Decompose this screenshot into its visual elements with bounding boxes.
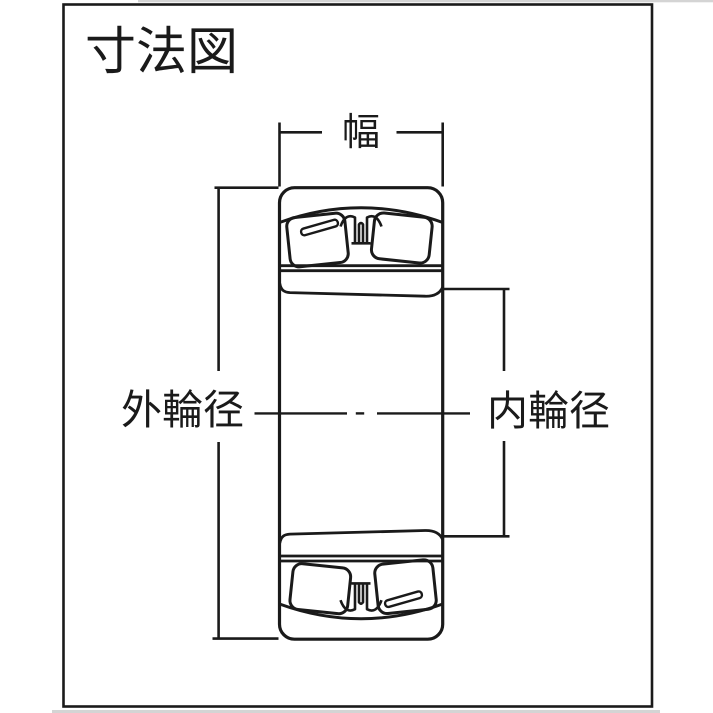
photo-edge-artifact-top (138, 0, 713, 2)
roller-bottom-right-highlight (384, 591, 422, 608)
photo-edge-artifacts (52, 0, 713, 713)
bearing-cross-section-drawing (0, 0, 713, 713)
diagram-title: 寸法図 (85, 27, 238, 78)
roller-top-left (286, 212, 349, 267)
outer-diameter-dimension-label: 外輪径 (121, 390, 244, 431)
roller-top-left-highlight (300, 219, 338, 236)
width-dimension-label: 幅 (342, 113, 380, 151)
bore-edge-top (280, 284, 443, 297)
roller-bottom-right (374, 559, 437, 614)
bore-edge-bottom (280, 530, 443, 543)
dimension-diagram: 寸法図 幅 外輪径 内輪径 (0, 0, 713, 713)
roller-top-right (371, 212, 433, 264)
inner-diameter-dimension-label: 内輪径 (487, 391, 610, 432)
roller-bottom-left (289, 563, 351, 615)
